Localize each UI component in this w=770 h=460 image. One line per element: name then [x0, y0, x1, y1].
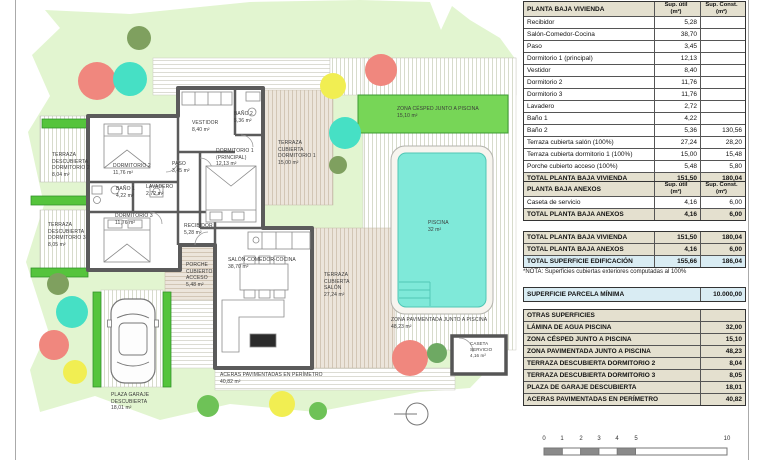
row-value-util: 2,72 [654, 101, 700, 112]
row-value-const [700, 17, 745, 28]
row-value: 32,00 [700, 322, 745, 333]
table-row: Vestidor8,40 [524, 64, 745, 76]
row-label: PLAZA DE GARAJE DESCUBIERTA [524, 382, 700, 393]
table-row: SUPERFICIE PARCELA MÍNIMA 10.000,00 [524, 288, 745, 301]
row-value: 48,23 [700, 346, 745, 357]
row-label: SUPERFICIE PARCELA MÍNIMA [524, 288, 700, 301]
label-caseta-servicio: CASETA SERVICIO 4,16 m² [470, 341, 492, 359]
row-label: Caseta de servicio [524, 197, 654, 208]
table-row: ZONA CÉSPED JUNTO A PISCINA15,10 [524, 333, 745, 345]
row-value-const [700, 89, 745, 100]
row-label: Baño 1 [524, 113, 654, 124]
row-value-const [700, 113, 745, 124]
row-value-const [700, 65, 745, 76]
row-label: ZONA PAVIMENTADA JUNTO A PISCINA [524, 346, 700, 357]
label-vestidor: VESTIDOR 8,40 m² [192, 120, 218, 133]
table-total-row: TOTAL PLANTA BAJA ANEXOS4,166,00 [524, 208, 745, 220]
plan-sheet: TERRAZA DESCUBIERTA DORMITORIO 2 8,04 m²… [0, 0, 770, 460]
label-dormitorio-3: DORMITORIO 3 11,76 m² [115, 213, 153, 226]
row-value-util: 155,66 [654, 256, 700, 267]
table-row: Dormitorio 311,76 [524, 88, 745, 100]
row-value-const [700, 101, 745, 112]
row-value-const: 186,04 [700, 256, 745, 267]
label-terraza-descubierta-dormitorio-2: TERRAZA DESCUBIERTA DORMITORIO 2 8,04 m² [52, 152, 90, 178]
row-value-const [700, 77, 745, 88]
row-value-util: 4,16 [654, 209, 700, 220]
label-terraza-cubierta-dormitorio-1: TERRAZA CUBIERTA DORMITORIO 1 15,00 m² [278, 140, 316, 166]
row-value: 8,05 [700, 370, 745, 381]
row-value-util: 4,16 [654, 197, 700, 208]
table-row: Salón-Comedor-Cocina38,70 [524, 28, 745, 40]
row-value-util: 4,16 [654, 244, 700, 255]
table-title: PLANTA BAJA VIVIENDA [524, 2, 654, 16]
table-planta-baja-vivienda: PLANTA BAJA VIVIENDA Sup. útil (m²) Sup.… [523, 1, 746, 185]
label-plaza-garaje: PLAZA GARAJE DESCUBIERTA 18,01 m² [111, 392, 149, 412]
table-header-row: PLANTA BAJA ANEXOS Sup. útil (m²) Sup. C… [524, 182, 745, 196]
tree-red [78, 62, 116, 100]
covered-terrace-salon-area [312, 228, 395, 368]
table-row: ZONA PAVIMENTADA JUNTO A PISCINA48,23 [524, 345, 745, 357]
table-row: Dormitorio 211,76 [524, 76, 745, 88]
row-label: Terraza cubierta salón (100%) [524, 137, 654, 148]
row-value-util: 3,45 [654, 41, 700, 52]
row-value-const [700, 53, 745, 64]
table-row: Caseta de servicio4,166,00 [524, 196, 745, 208]
tree-olive [329, 156, 347, 174]
row-label: Lavadero [524, 101, 654, 112]
row-value: 8,04 [700, 358, 745, 369]
row-value-util: 4,22 [654, 113, 700, 124]
row-value-const: 15,48 [700, 149, 745, 160]
row-label: Terraza cubierta dormitorio 1 (100%) [524, 149, 654, 160]
table-row: TERRAZA DESCUBIERTA DORMITORIO 38,05 [524, 369, 745, 381]
table-title: OTRAS SUPERFICIES [524, 310, 700, 321]
label-zona-pavimentada: ZONA PAVIMENTADA JUNTO A PISCINA 48,23 m… [391, 317, 487, 330]
row-value-util: 5,48 [654, 161, 700, 172]
label-salon-comedor-cocina: SALÓN-COMEDOR-COCINA 38,70 m² [228, 257, 296, 270]
row-label: Dormitorio 3 [524, 89, 654, 100]
scale-tick: 4 [615, 436, 618, 442]
row-value: 40,82 [700, 394, 745, 405]
table-row: Terraza cubierta dormitorio 1 (100%)15,0… [524, 148, 745, 160]
row-value-const: 130,56 [700, 125, 745, 136]
row-value-util: 12,13 [654, 53, 700, 64]
row-label: Paso [524, 41, 654, 52]
row-value-const [700, 41, 745, 52]
row-label: ZONA CÉSPED JUNTO A PISCINA [524, 334, 700, 345]
row-value-const: 180,04 [700, 232, 745, 243]
row-value-const [700, 29, 745, 40]
label-aceras: ACERAS PAVIMENTADAS EN PERÍMETRO 40,82 m… [220, 372, 323, 385]
table-row: Porche cubierto acceso (100%)5,485,80 [524, 160, 745, 172]
table-title: PLANTA BAJA ANEXOS [524, 182, 654, 196]
row-value-const: 5,80 [700, 161, 745, 172]
walkway-south-entry [165, 300, 215, 368]
label-recibidor: RECIBIDOR 5,28 m² [184, 223, 213, 236]
table-total-row: TOTAL SUPERFICIE EDIFICACIÓN155,66186,04 [524, 255, 745, 267]
row-value-const: 28,20 [700, 137, 745, 148]
row-label: Baño 2 [524, 125, 654, 136]
row-label: Vestidor [524, 65, 654, 76]
row-label: TOTAL PLANTA BAJA ANEXOS [524, 244, 654, 255]
table-row: Baño 14,22 [524, 112, 745, 124]
row-value-util: 5,28 [654, 17, 700, 28]
tree-green [309, 402, 327, 420]
row-value-const: 6,00 [700, 197, 745, 208]
scale-tick: 3 [597, 436, 600, 442]
tree-green [197, 395, 219, 417]
col-header-sup-util: Sup. útil (m²) [654, 182, 700, 196]
scale-tick: 5 [634, 436, 637, 442]
row-label: Salón-Comedor-Cocina [524, 29, 654, 40]
row-value-util: 27,24 [654, 137, 700, 148]
survey-symbol [394, 403, 428, 425]
tree-yellow [320, 73, 346, 99]
scale-tick: 2 [579, 436, 582, 442]
label-zona-cesped: ZONA CÉSPED JUNTO A PISCINA 15,10 m² [397, 106, 479, 119]
row-value-const: 6,00 [700, 244, 745, 255]
row-value-util: 38,70 [654, 29, 700, 40]
label-bano-1: BAÑO 1 4,22 m² [116, 186, 135, 199]
label-dormitorio-1: DORMITORIO 1 (PRINCIPAL) 12,13 m² [216, 148, 254, 168]
col-header-sup-const: Sup. Const. (m²) [700, 182, 745, 196]
table-row: ACERAS PAVIMENTADAS EN PERÍMETRO40,82 [524, 393, 745, 405]
scale-tick: 1 [560, 436, 563, 442]
footnote: *NOTA: Superficies cubiertas exteriores … [523, 269, 686, 275]
row-value-util: 15,00 [654, 149, 700, 160]
row-label: TERRAZA DESCUBIERTA DORMITORIO 2 [524, 358, 700, 369]
row-label: TOTAL PLANTA BAJA ANEXOS [524, 209, 654, 220]
table-totales: TOTAL PLANTA BAJA VIVIENDA151,50180,04 T… [523, 231, 746, 268]
table-row: Dormitorio 1 (principal)12,13 [524, 52, 745, 64]
table-row: Paso3,45 [524, 40, 745, 52]
table-parcela-minima: SUPERFICIE PARCELA MÍNIMA 10.000,00 [523, 287, 746, 302]
row-value-util: 151,50 [654, 232, 700, 243]
table-planta-baja-anexos: PLANTA BAJA ANEXOS Sup. útil (m²) Sup. C… [523, 181, 746, 221]
tree-red [365, 54, 397, 86]
tree-olive [127, 26, 151, 50]
row-label: Dormitorio 2 [524, 77, 654, 88]
scale-tick: 10 [724, 436, 731, 442]
table-total-row: TOTAL PLANTA BAJA VIVIENDA151,50180,04 [524, 232, 745, 243]
label-bano-2: BAÑO 2 5,36 m² [234, 111, 253, 124]
row-label: ACERAS PAVIMENTADAS EN PERÍMETRO [524, 394, 700, 405]
table-row: Terraza cubierta salón (100%)27,2428,20 [524, 136, 745, 148]
label-terraza-descubierta-dormitorio-3: TERRAZA DESCUBIERTA DORMITORIO 3 8,05 m² [48, 222, 86, 248]
label-dormitorio-2: DORMITORIO 2 11,76 m² [113, 163, 151, 176]
tree-yellow [269, 391, 295, 417]
label-lavadero: LAVADERO 2,72 m² [146, 184, 173, 197]
row-value-util: 11,76 [654, 77, 700, 88]
table-header-row: PLANTA BAJA VIVIENDA Sup. útil (m²) Sup.… [524, 2, 745, 16]
tree-teal [113, 62, 147, 96]
label-terraza-cubierta-salon: TERRAZA CUBIERTA SALÓN 27,24 m² [324, 272, 350, 298]
car [108, 299, 159, 383]
row-value: 18,01 [700, 382, 745, 393]
row-label: Dormitorio 1 (principal) [524, 53, 654, 64]
row-value-util: 8,40 [654, 65, 700, 76]
table-row: PLAZA DE GARAJE DESCUBIERTA18,01 [524, 381, 745, 393]
tree-yellow [63, 360, 87, 384]
tree-teal [56, 296, 88, 328]
row-value: 15,10 [700, 334, 745, 345]
tree-red [39, 330, 69, 360]
table-total-row: TOTAL PLANTA BAJA ANEXOS4,166,00 [524, 243, 745, 255]
row-value-util: 11,76 [654, 89, 700, 100]
table-row: Lavadero2,72 [524, 100, 745, 112]
label-paso: PASO 3,45 m² [172, 161, 190, 174]
label-piscina: PISCINA 32 m² [428, 220, 449, 233]
tree-teal [329, 117, 361, 149]
row-value-const: 6,00 [700, 209, 745, 220]
label-porche: PORCHE CUBIERTO ACCESO 5,48 m² [186, 262, 212, 288]
scale-tick: 0 [542, 436, 545, 442]
scale-bar: 0 1 2 3 4 5 10 [540, 436, 740, 460]
row-label: LÁMINA DE AGUA PISCINA [524, 322, 700, 333]
row-label: TOTAL SUPERFICIE EDIFICACIÓN [524, 256, 654, 267]
col-header-sup-const: Sup. Const. (m²) [700, 2, 745, 16]
row-label: TOTAL PLANTA BAJA VIVIENDA [524, 232, 654, 243]
scale-bar-graphic [540, 446, 740, 458]
table-otras-superficies: OTRAS SUPERFICIES LÁMINA DE AGUA PISCINA… [523, 309, 746, 406]
row-value: 10.000,00 [700, 288, 745, 301]
row-label: Recibidor [524, 17, 654, 28]
row-label: TERRAZA DESCUBIERTA DORMITORIO 3 [524, 370, 700, 381]
table-row: TERRAZA DESCUBIERTA DORMITORIO 28,04 [524, 357, 745, 369]
row-value [700, 310, 745, 321]
table-row: Recibidor5,28 [524, 16, 745, 28]
tree-red [392, 340, 428, 376]
col-header-sup-util: Sup. útil (m²) [654, 2, 700, 16]
table-row: LÁMINA DE AGUA PISCINA32,00 [524, 321, 745, 333]
tree-green [427, 343, 447, 363]
row-value-util: 5,36 [654, 125, 700, 136]
row-label: Porche cubierto acceso (100%) [524, 161, 654, 172]
tree-olive [47, 273, 69, 295]
table-row: Baño 25,36130,56 [524, 124, 745, 136]
table-header-row: OTRAS SUPERFICIES [524, 310, 745, 321]
